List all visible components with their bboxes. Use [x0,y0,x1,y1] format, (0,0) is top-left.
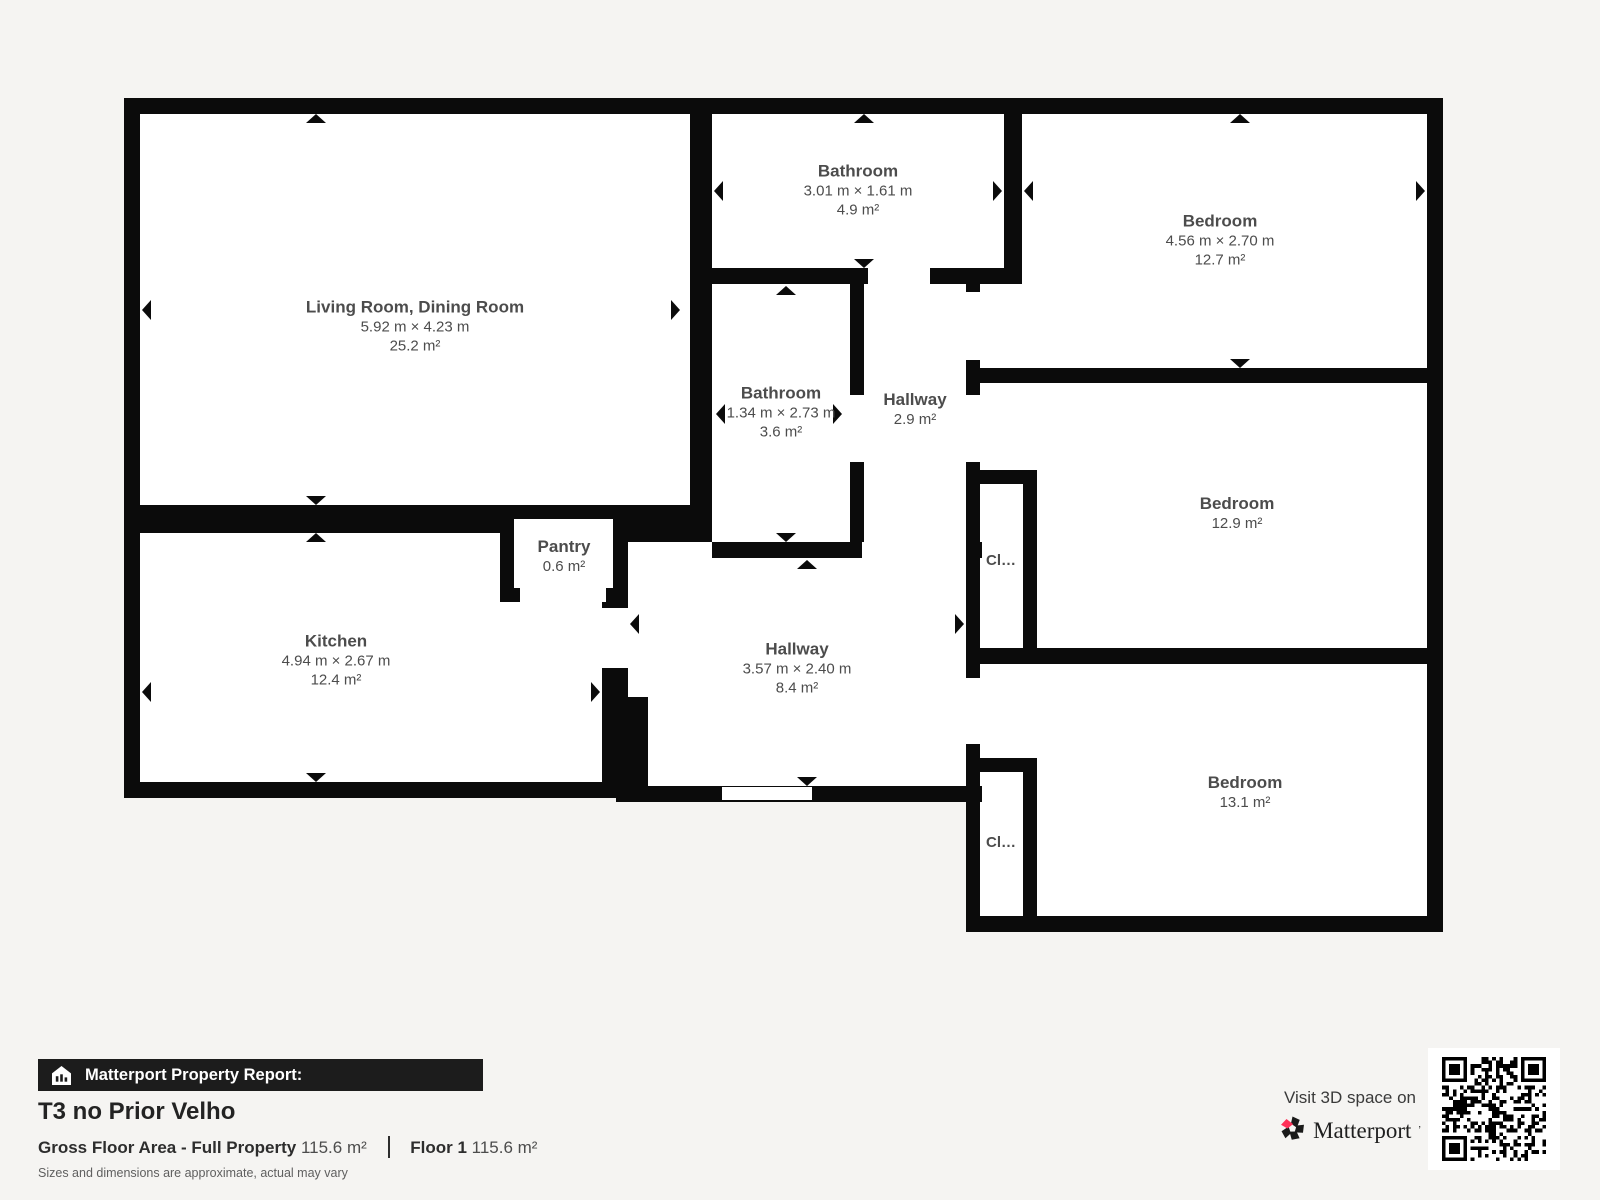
measure-arrow-icon [671,300,680,320]
room-area: 4.9 m² [804,201,913,220]
room-label-bathroom-top: Bathroom 3.01 m × 1.61 m 4.9 m² [804,161,913,220]
measure-arrow-icon [306,496,326,505]
room-name: Bathroom [727,383,836,404]
measure-arrow-icon [630,614,639,634]
wall-segment [966,916,1443,932]
trademark-tick: ʼ [1418,1125,1420,1137]
wall-segment [690,98,712,543]
measure-arrow-icon [854,114,874,123]
door-opening [966,395,980,462]
room-dims: 3.57 m × 2.40 m [743,660,852,679]
door-opening [862,542,966,558]
measure-arrow-icon [797,560,817,569]
qr-code [1442,1057,1546,1161]
measure-arrow-icon [306,533,326,542]
room-area: 12.9 m² [1200,514,1275,533]
measure-arrow-icon [306,114,326,123]
visit-3d-space-block: Visit 3D space on Matterportʼ [1240,1088,1460,1147]
measure-arrow-icon [993,181,1002,201]
measure-arrow-icon [1230,114,1250,123]
property-title: T3 no Prior Velho [38,1098,235,1126]
wall-segment [124,505,504,533]
report-header-bar: Matterport Property Report: [38,1059,483,1091]
measure-arrow-icon [142,682,151,702]
room-name: Hallway [883,389,946,410]
room-area: 12.7 m² [1166,251,1275,270]
wall-segment [602,697,648,711]
door-opening [966,292,980,360]
room-label-hallway-small: Hallway 2.9 m² [883,389,946,429]
room-name: Pantry [538,536,591,557]
report-label: Matterport Property Report: [85,1066,302,1085]
wall-segment [1023,758,1037,932]
room-label-pantry: Pantry 0.6 m² [538,536,591,576]
room-label-living: Living Room, Dining Room 5.92 m × 4.23 m… [306,297,524,356]
room-dims: 5.92 m × 4.23 m [306,318,524,337]
room-label-bathroom-mid: Bathroom 1.34 m × 2.73 m 3.6 m² [727,383,836,442]
measure-arrow-icon [716,404,725,424]
measure-arrow-icon [1024,181,1033,201]
wall-segment [966,368,1443,383]
room-area: 12.4 m² [282,671,391,690]
qr-card [1428,1048,1560,1170]
room-name: Bathroom [804,161,913,182]
gross-floor-area-label: Gross Floor Area - Full Property [38,1138,296,1157]
door-opening [602,608,628,668]
room-area: 25.2 m² [306,337,524,356]
room-name: Hallway [743,639,852,660]
door-opening [850,395,864,462]
floor-plan-report-page: Living Room, Dining Room 5.92 m × 4.23 m… [0,0,1600,1200]
wall-segment [1427,98,1443,932]
room-dims: 4.56 m × 2.70 m [1166,232,1275,251]
room-label-kitchen: Kitchen 4.94 m × 2.67 m 12.4 m² [282,631,391,690]
room-name: Bedroom [1166,211,1275,232]
measure-arrow-icon [1230,359,1250,368]
floor-value: 115.6 m² [472,1138,538,1157]
measure-arrow-icon [1416,181,1425,201]
wall-segment [124,98,1443,114]
door-opening [868,268,930,284]
room-dims: 4.94 m × 2.67 m [282,652,391,671]
cta-text: Visit 3D space on [1240,1088,1460,1108]
measure-arrow-icon [776,286,796,295]
room-area: 3.6 m² [727,423,836,442]
matterport-logo-icon [1279,1115,1306,1147]
wall-segment [124,782,616,798]
room-area: 0.6 m² [538,557,591,576]
measure-arrow-icon [776,533,796,542]
room-name: Kitchen [282,631,391,652]
wall-segment [1004,98,1022,270]
measure-arrow-icon [714,181,723,201]
door-opening [628,542,712,558]
room-name: Living Room, Dining Room [306,297,524,318]
door-opening [520,588,606,602]
measure-arrow-icon [955,614,964,634]
measure-arrow-icon [306,773,326,782]
room-label-bedroom-bottom: Bedroom 13.1 m² [1208,772,1283,812]
door-opening [966,678,980,744]
divider [388,1136,390,1158]
room-dims: 1.34 m × 2.73 m [727,404,836,423]
room-name: Bedroom [1200,493,1275,514]
room-area: 2.9 m² [883,410,946,429]
room-area: 8.4 m² [743,679,852,698]
home-report-icon [52,1066,71,1085]
wall-segment [966,648,1443,664]
closet-label: Cl… [986,834,1016,851]
disclaimer-text: Sizes and dimensions are approximate, ac… [38,1166,348,1180]
room-label-bedroom-top: Bedroom 4.56 m × 2.70 m 12.7 m² [1166,211,1275,270]
room-area: 13.1 m² [1208,793,1283,812]
room-label-bedroom-mid: Bedroom 12.9 m² [1200,493,1275,533]
door-opening [722,787,812,800]
floor-area-stats: Gross Floor Area - Full Property 115.6 m… [38,1136,537,1158]
wall-segment [628,711,648,787]
closet-label: Cl… [986,552,1016,569]
gross-floor-area-value: 115.6 m² [301,1138,367,1157]
wall-segment [500,505,628,519]
measure-arrow-icon [142,300,151,320]
wall-segment [966,270,980,932]
room-name: Bedroom [1208,772,1283,793]
wall-segment [124,98,140,798]
room-label-hallway-main: Hallway 3.57 m × 2.40 m 8.4 m² [743,639,852,698]
room-dims: 3.01 m × 1.61 m [804,182,913,201]
wall-segment [1023,470,1037,662]
measure-arrow-icon [854,259,874,268]
floor-label: Floor 1 [410,1138,467,1157]
measure-arrow-icon [591,682,600,702]
matterport-wordmark: Matterport [1313,1118,1411,1144]
measure-arrow-icon [797,777,817,786]
